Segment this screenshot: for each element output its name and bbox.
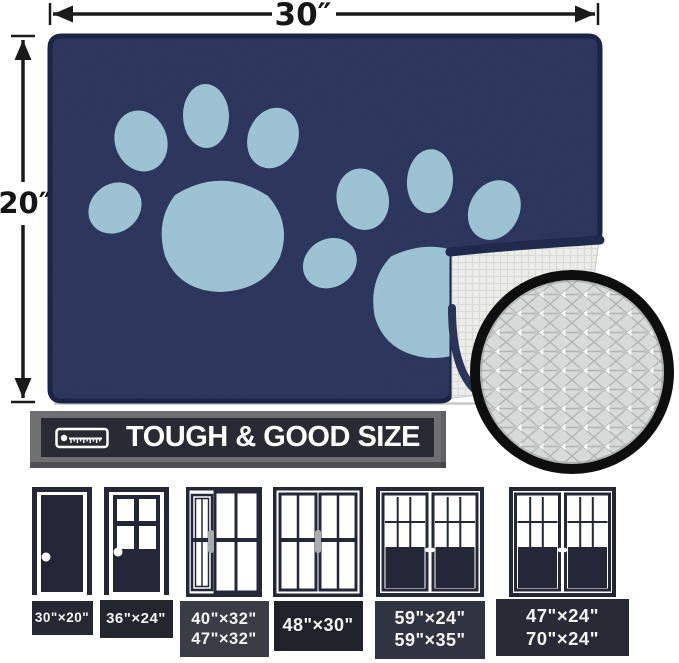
door-knob bbox=[430, 548, 434, 552]
ruler-icon bbox=[55, 426, 109, 450]
door-solid: 30"×20" bbox=[30, 487, 94, 635]
door-french: 59"×24" 59"×35" bbox=[374, 487, 486, 659]
height-label: 20″ bbox=[0, 186, 52, 220]
door-knob bbox=[563, 548, 567, 552]
door-half-glass-icon bbox=[104, 487, 169, 595]
door-handle bbox=[208, 530, 214, 553]
door-size-label: 36"×24" bbox=[100, 600, 173, 638]
size-banner: TOUGH & GOOD SIZE bbox=[30, 411, 446, 468]
door-french-wide-icon bbox=[509, 487, 616, 597]
width-dimension-arrow: 30″ bbox=[50, 0, 598, 33]
door-french-wide: 47"×24" 70"×24" bbox=[496, 487, 629, 656]
door-knob bbox=[425, 548, 429, 552]
door-double-slider: 48"×30" bbox=[272, 487, 364, 651]
height-dimension-arrow: 20″ bbox=[0, 36, 52, 402]
door-size-label: 59"×24" 59"×35" bbox=[375, 601, 485, 659]
door-slider-sidelight-icon bbox=[186, 487, 262, 597]
door-size-label: 30"×20" bbox=[32, 601, 93, 635]
backing-zoom-circle bbox=[475, 275, 669, 469]
product-infographic: 30″ 20″ bbox=[0, 0, 679, 663]
door-size-label: 47"×24" 70"×24" bbox=[496, 599, 629, 656]
door-knob bbox=[558, 548, 562, 552]
width-label: 30″ bbox=[275, 0, 332, 33]
door-solid-icon bbox=[32, 487, 92, 595]
door-slider-sidelight: 40"×32" 47"×32" bbox=[179, 487, 269, 657]
door-size-label: 48"×30" bbox=[274, 601, 363, 651]
door-double-slider-icon bbox=[273, 487, 363, 597]
door-half-glass: 36"×24" bbox=[99, 487, 173, 638]
door-size-chart: 30"×20" 36"×24" bbox=[0, 487, 679, 663]
door-handle bbox=[315, 530, 321, 553]
door-knob bbox=[42, 553, 51, 562]
door-size-label: 40"×32" 47"×32" bbox=[180, 601, 269, 657]
door-french-icon bbox=[376, 487, 484, 597]
banner-text: TOUGH & GOOD SIZE bbox=[126, 421, 420, 454]
door-knob bbox=[113, 548, 122, 557]
